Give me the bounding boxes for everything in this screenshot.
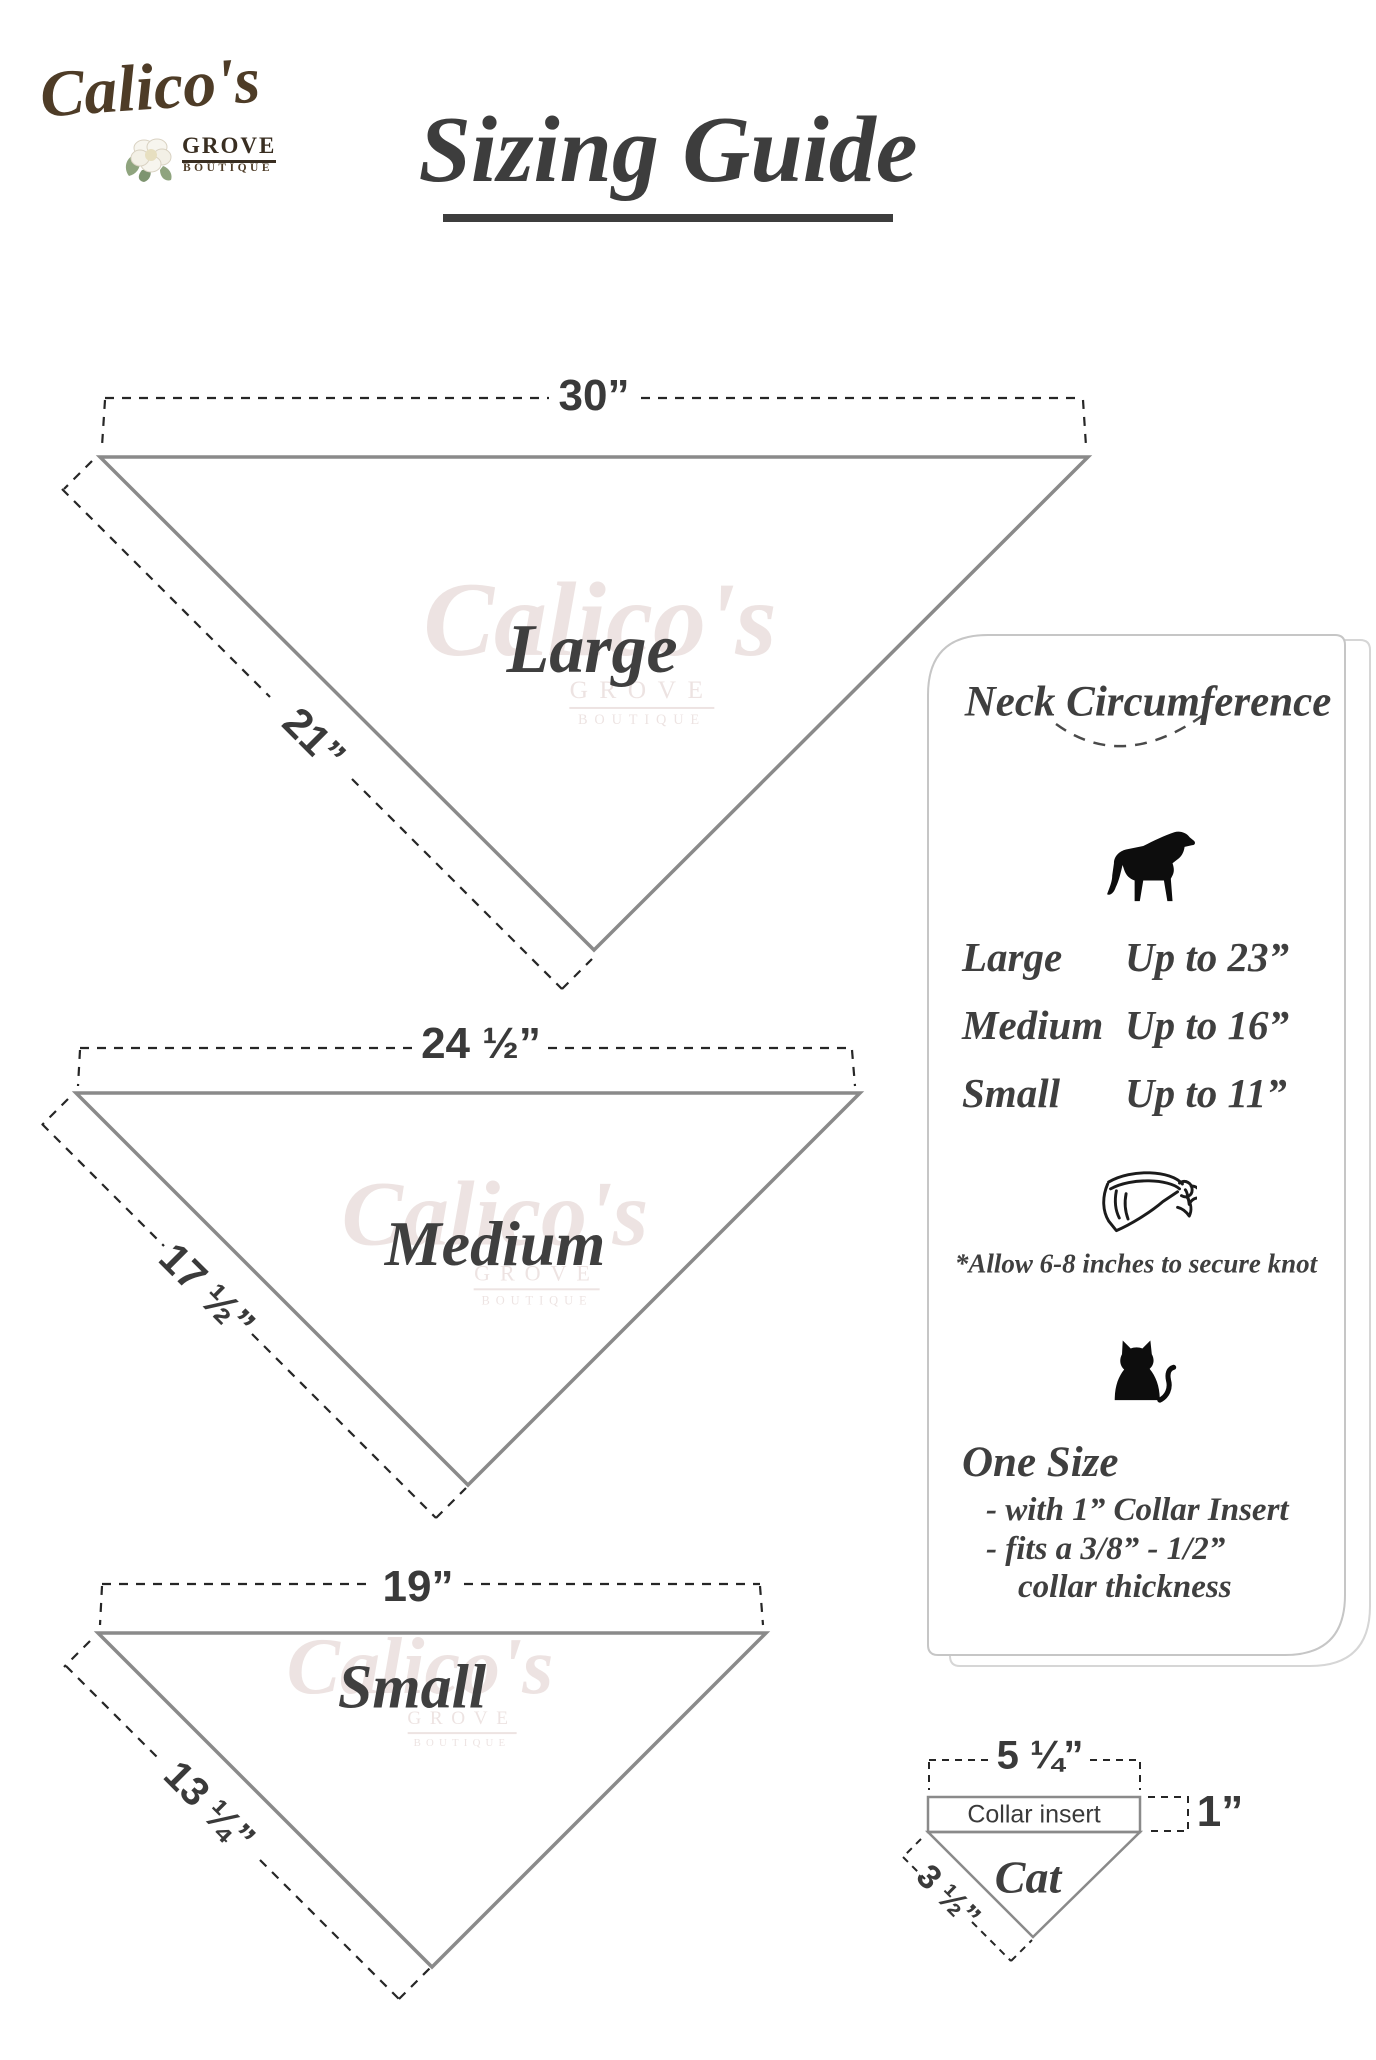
large-top-width-dimension: 30” xyxy=(559,371,630,421)
size-label: Large xyxy=(962,932,1125,982)
size-row-medium: Medium Up to 16” xyxy=(962,1000,1322,1050)
flower-icon xyxy=(124,126,176,182)
logo-wordmark: Calico's xyxy=(38,42,263,133)
cat-top-width-dimension: 5 ¼” xyxy=(997,1734,1084,1779)
knot-allowance-note: *Allow 6-8 inches to secure knot xyxy=(955,1249,1317,1280)
one-size-heading: One Size xyxy=(962,1438,1118,1487)
logo-boutique-text: BOUTIQUE xyxy=(183,162,273,174)
logo-grove-text: GROVE xyxy=(182,133,276,163)
title-underline xyxy=(443,214,893,222)
one-size-detail-collar-thickness: collar thickness xyxy=(1018,1569,1232,1605)
dog-icon xyxy=(1095,826,1207,910)
size-value: Up to 16” xyxy=(1125,1000,1289,1050)
bandana-icon xyxy=(1095,1163,1197,1239)
cat-icon xyxy=(1098,1330,1178,1412)
one-size-detail-collar-thickness-range: - fits a 3/8” - 1/2” xyxy=(986,1531,1225,1567)
small-top-width-dimension: 19” xyxy=(383,1562,454,1612)
page-title: Sizing Guide xyxy=(419,96,918,204)
panel-heading-neck-circumference: Neck Circumference xyxy=(965,678,1332,727)
medium-bandana-label: Medium xyxy=(385,1207,605,1281)
size-row-small: Small Up to 11” xyxy=(962,1068,1322,1118)
large-bandana-label: Large xyxy=(506,610,677,690)
collar-insert-height-dimension: 1” xyxy=(1197,1787,1243,1837)
cat-bandana-label: Cat xyxy=(995,1851,1061,1904)
size-value: Up to 11” xyxy=(1125,1068,1287,1118)
one-size-detail-collar-insert: - with 1” Collar Insert xyxy=(986,1492,1289,1528)
medium-top-width-dimension: 24 ½” xyxy=(421,1019,541,1069)
size-value: Up to 23” xyxy=(1125,932,1289,982)
small-bandana-label: Small xyxy=(338,1653,486,1724)
size-label: Small xyxy=(962,1068,1125,1118)
size-label: Medium xyxy=(962,1000,1125,1050)
collar-insert-label: Collar insert xyxy=(967,1801,1100,1830)
size-row-large: Large Up to 23” xyxy=(962,932,1322,982)
